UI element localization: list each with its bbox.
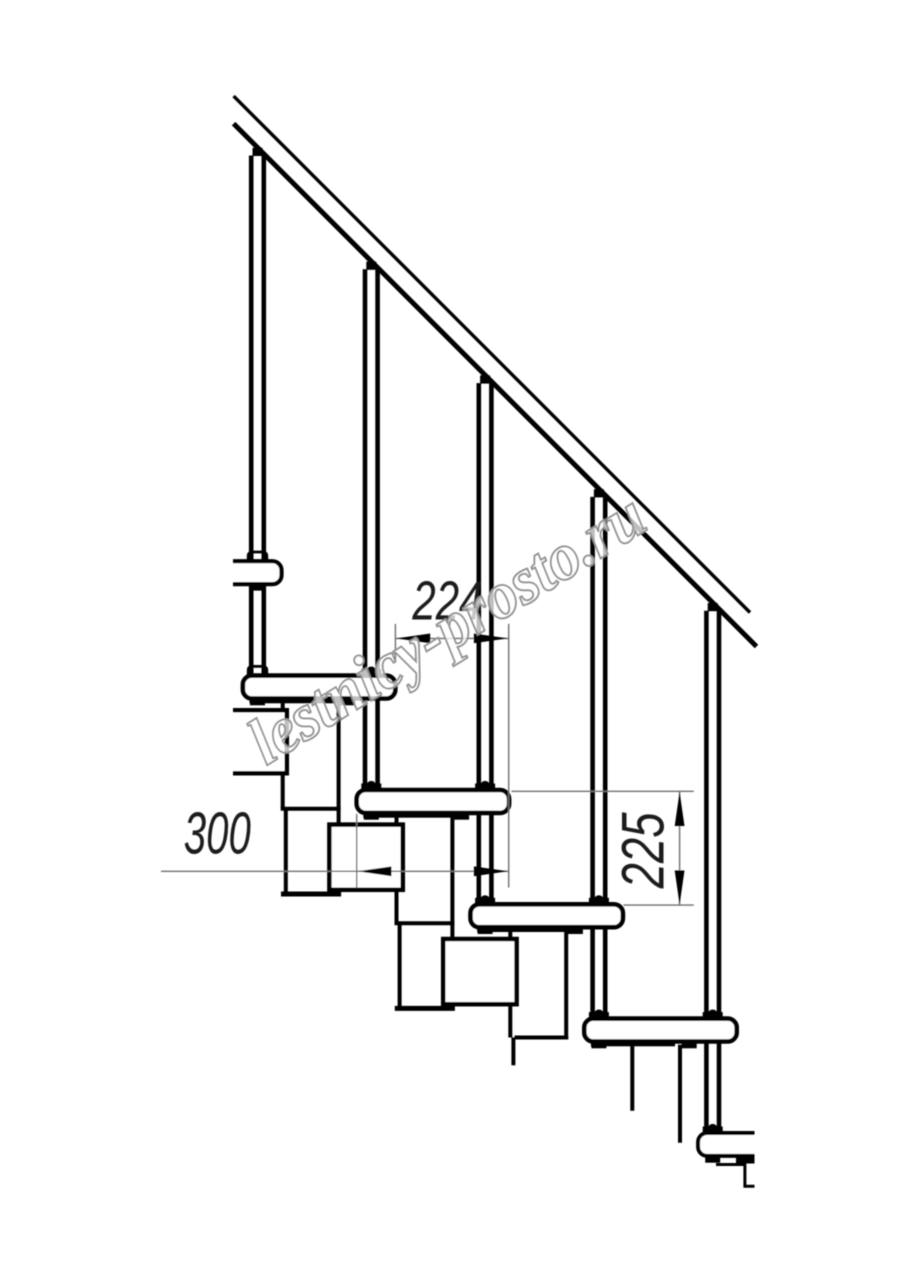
svg-text:300: 300 bbox=[184, 801, 251, 867]
svg-text:225: 225 bbox=[610, 812, 677, 889]
